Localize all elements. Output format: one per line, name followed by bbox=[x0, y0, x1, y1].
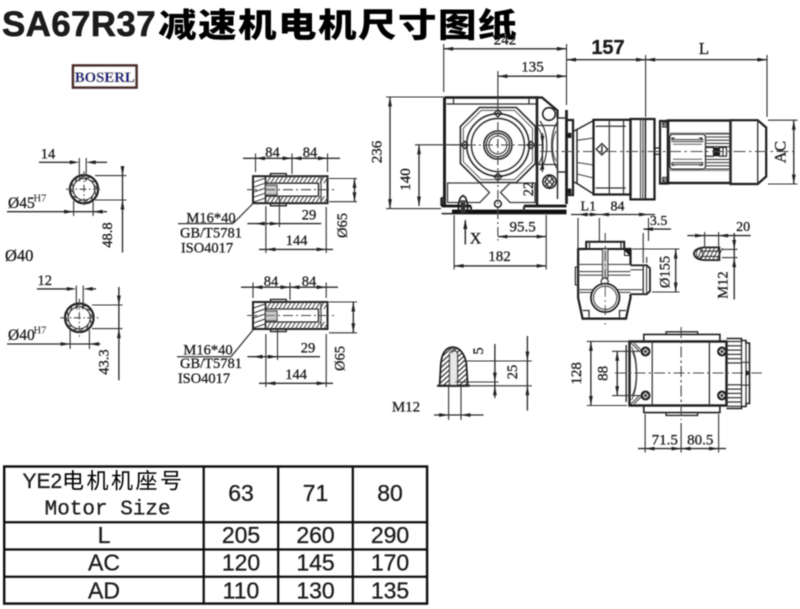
svg-text:63: 63 bbox=[228, 480, 254, 506]
svg-text:84: 84 bbox=[264, 274, 279, 290]
svg-text:Ø40: Ø40 bbox=[8, 327, 35, 344]
svg-text:BOSERL: BOSERL bbox=[75, 70, 135, 86]
svg-text:80.5: 80.5 bbox=[687, 433, 713, 449]
svg-text:Ø40: Ø40 bbox=[5, 246, 33, 265]
svg-text:Ø65: Ø65 bbox=[333, 346, 349, 371]
svg-text:L1: L1 bbox=[581, 200, 597, 215]
svg-text:95.5: 95.5 bbox=[509, 220, 535, 236]
svg-text:84: 84 bbox=[611, 200, 625, 215]
svg-text:43.3: 43.3 bbox=[96, 349, 112, 374]
svg-text:M12: M12 bbox=[392, 400, 420, 416]
svg-text:SA67R37: SA67R37 bbox=[2, 5, 156, 44]
svg-text:29: 29 bbox=[302, 208, 317, 224]
svg-text:182: 182 bbox=[488, 249, 511, 265]
svg-text:22: 22 bbox=[521, 182, 537, 197]
svg-text:5: 5 bbox=[471, 347, 487, 354]
svg-text:Ø65: Ø65 bbox=[335, 213, 351, 238]
svg-text:84: 84 bbox=[302, 274, 317, 290]
svg-text:L: L bbox=[98, 522, 111, 548]
svg-text:71.5: 71.5 bbox=[652, 433, 678, 449]
svg-text:144: 144 bbox=[286, 233, 309, 249]
svg-text:290: 290 bbox=[371, 522, 409, 548]
svg-text:GB/T5781: GB/T5781 bbox=[180, 226, 242, 242]
svg-text:H7: H7 bbox=[34, 194, 47, 205]
svg-text:140: 140 bbox=[398, 168, 414, 191]
svg-text:145: 145 bbox=[296, 550, 334, 576]
svg-text:Ø45: Ø45 bbox=[8, 195, 35, 212]
svg-text:71: 71 bbox=[303, 480, 329, 506]
svg-text:135: 135 bbox=[371, 578, 409, 604]
svg-text:AD: AD bbox=[88, 578, 120, 604]
svg-text:GB/T5781: GB/T5781 bbox=[180, 356, 242, 372]
svg-text:25: 25 bbox=[505, 365, 521, 380]
svg-text:ISO4017: ISO4017 bbox=[181, 241, 233, 257]
svg-text:M12: M12 bbox=[715, 271, 731, 298]
svg-text:170: 170 bbox=[371, 550, 409, 576]
svg-text:AC: AC bbox=[773, 141, 790, 163]
svg-text:29: 29 bbox=[301, 341, 316, 357]
svg-text:84: 84 bbox=[265, 145, 280, 161]
svg-text:242: 242 bbox=[494, 33, 517, 49]
svg-text:128: 128 bbox=[569, 362, 585, 385]
svg-text:Ø155: Ø155 bbox=[658, 256, 674, 288]
svg-text:Motor Size: Motor Size bbox=[45, 499, 171, 522]
svg-text:205: 205 bbox=[222, 522, 260, 548]
svg-text:X: X bbox=[470, 231, 482, 248]
svg-text:L: L bbox=[699, 39, 709, 58]
svg-text:88: 88 bbox=[596, 366, 612, 381]
svg-text:236: 236 bbox=[370, 140, 386, 163]
svg-text:120: 120 bbox=[222, 550, 260, 576]
svg-text:157: 157 bbox=[591, 37, 624, 59]
svg-text:135: 135 bbox=[521, 60, 544, 76]
svg-text:ISO4017: ISO4017 bbox=[178, 371, 230, 387]
svg-text:H7: H7 bbox=[34, 326, 47, 337]
svg-text:144: 144 bbox=[285, 367, 308, 383]
svg-text:130: 130 bbox=[296, 578, 334, 604]
svg-text:110: 110 bbox=[223, 578, 260, 604]
svg-text:14: 14 bbox=[41, 147, 56, 163]
svg-text:84: 84 bbox=[303, 145, 318, 161]
svg-text:80: 80 bbox=[377, 480, 403, 506]
svg-text:12: 12 bbox=[38, 273, 53, 289]
svg-text:3.5: 3.5 bbox=[650, 214, 668, 229]
svg-text:20: 20 bbox=[736, 220, 750, 235]
svg-text:260: 260 bbox=[296, 522, 334, 548]
svg-text:48.8: 48.8 bbox=[100, 222, 116, 247]
svg-text:AC: AC bbox=[88, 550, 120, 576]
svg-text:YE2: YE2 bbox=[23, 470, 63, 493]
